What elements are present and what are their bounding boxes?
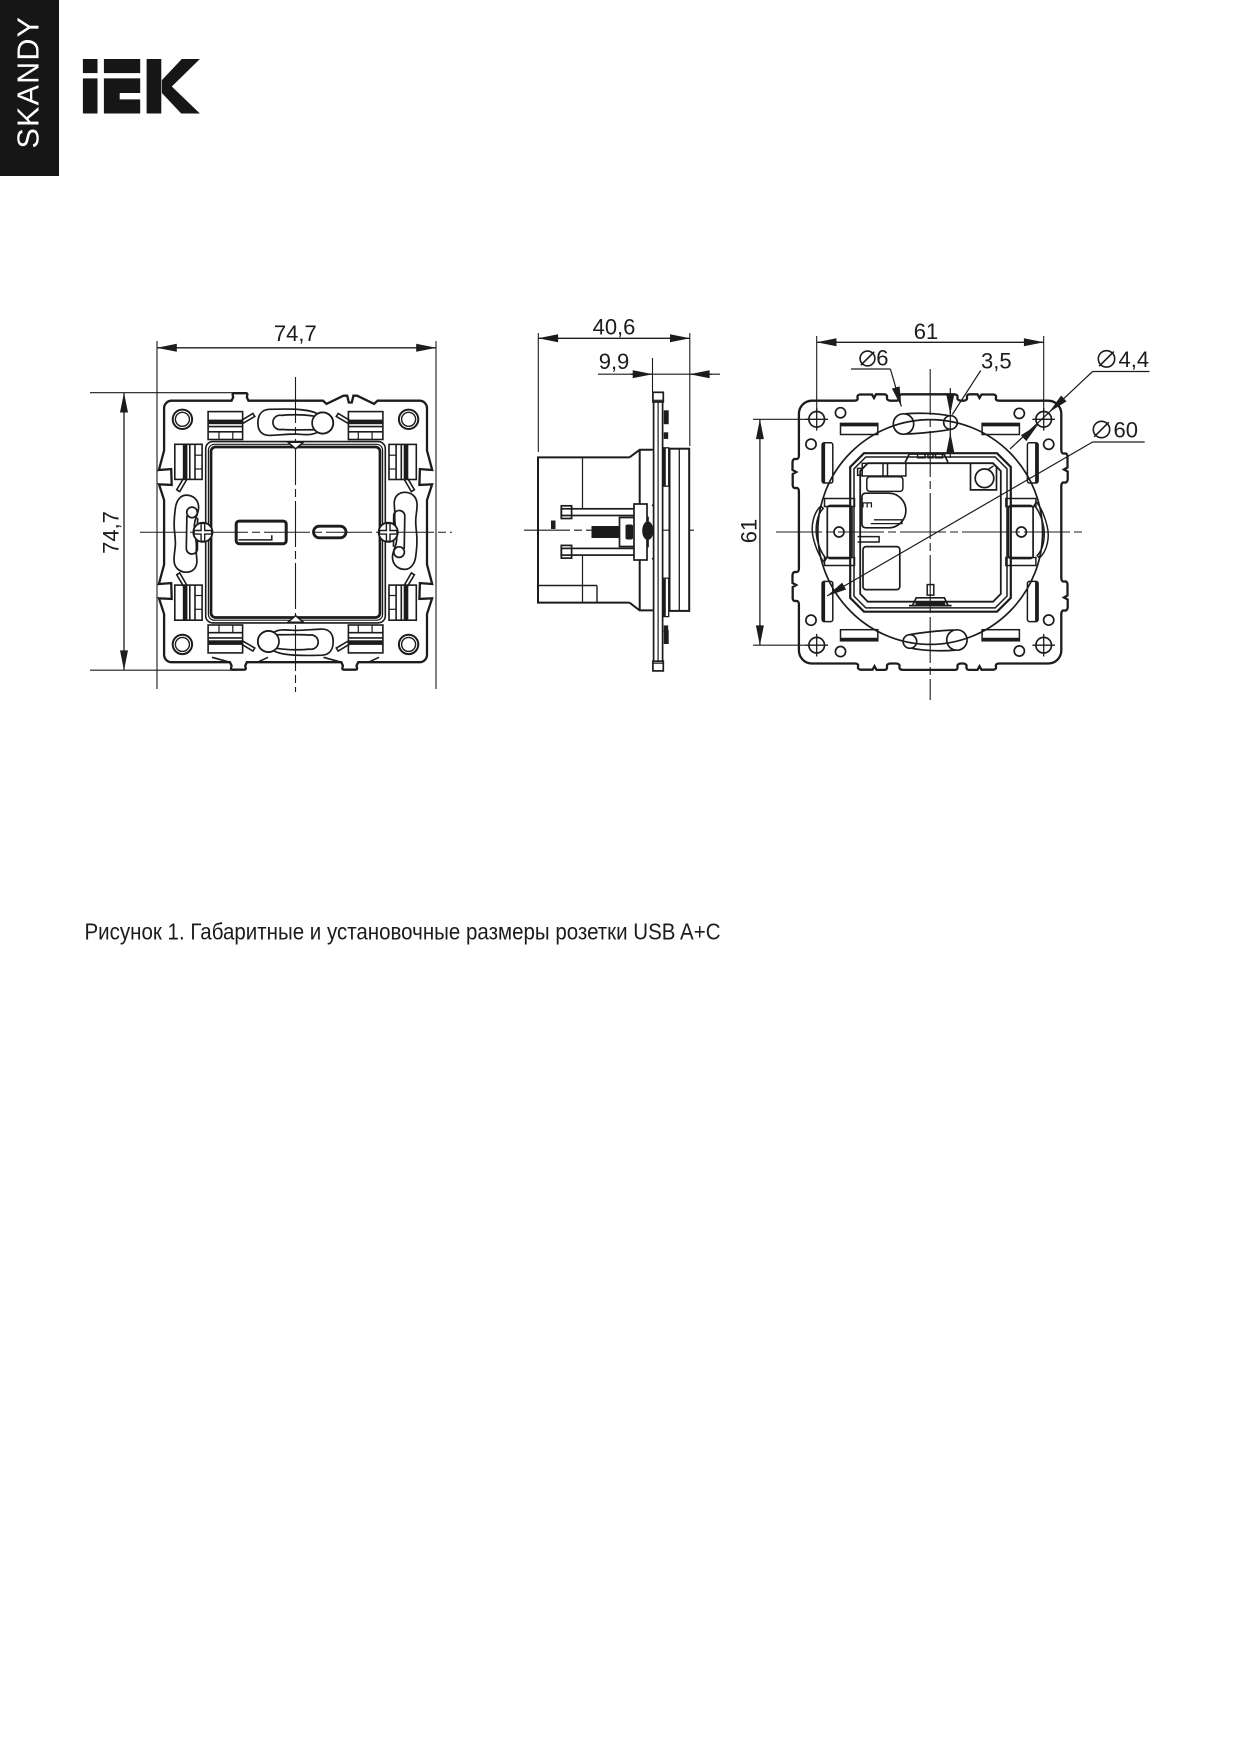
svg-text:SKANDY: SKANDY bbox=[12, 16, 46, 149]
svg-text:Рисунок 1. Габаритные и устано: Рисунок 1. Габаритные и установочные раз… bbox=[85, 919, 721, 945]
svg-text:74,7: 74,7 bbox=[274, 321, 317, 346]
svg-text:3,5: 3,5 bbox=[981, 349, 1012, 374]
svg-text:4,4: 4,4 bbox=[1119, 347, 1150, 372]
svg-text:40,6: 40,6 bbox=[593, 315, 636, 340]
svg-text:61: 61 bbox=[914, 319, 938, 344]
svg-text:6: 6 bbox=[876, 346, 888, 371]
svg-text:60: 60 bbox=[1114, 418, 1138, 443]
svg-text:74,7: 74,7 bbox=[99, 511, 124, 554]
svg-text:61: 61 bbox=[737, 519, 762, 543]
svg-text:9,9: 9,9 bbox=[599, 349, 630, 374]
